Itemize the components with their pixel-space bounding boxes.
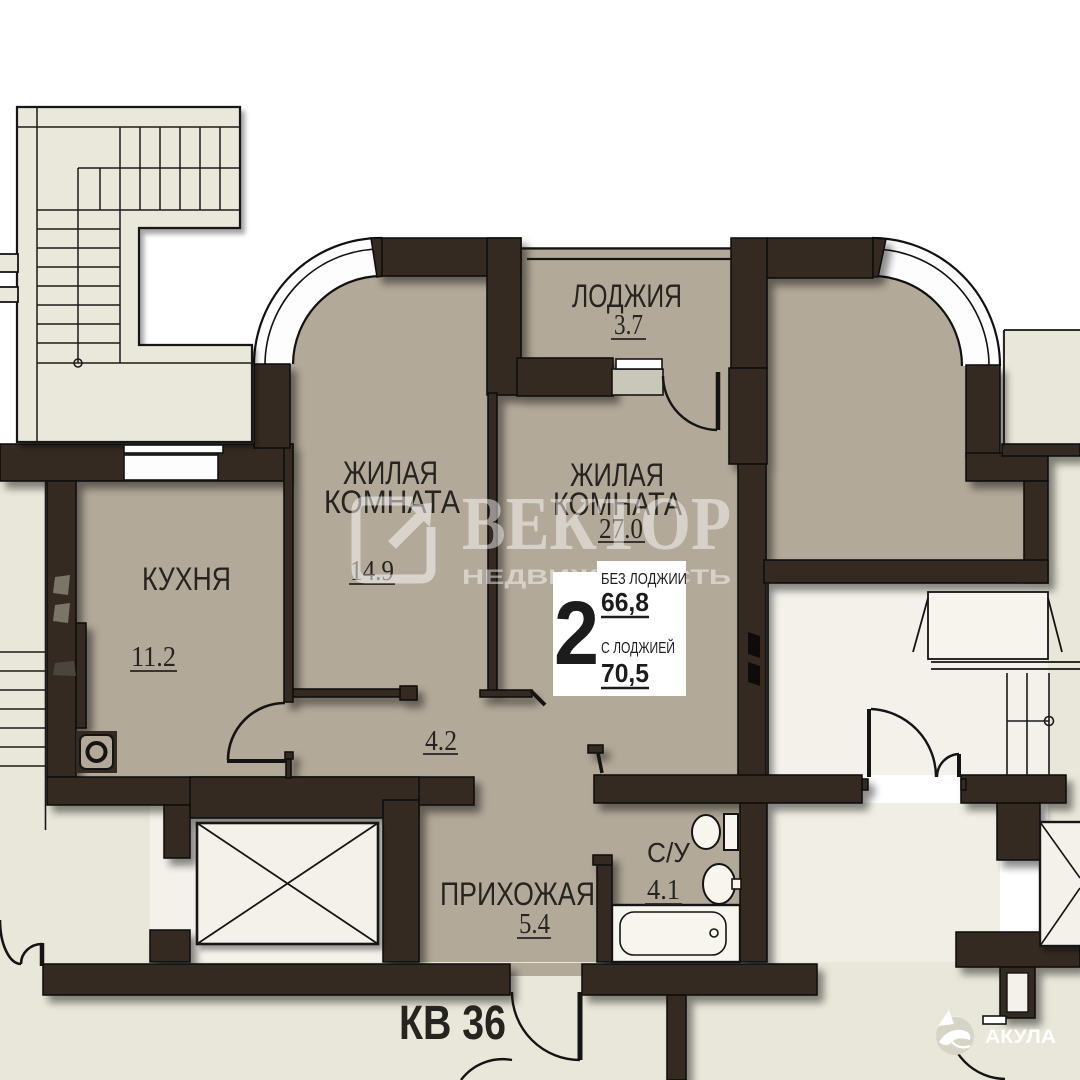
svg-text:3.7: 3.7	[614, 309, 643, 341]
svg-text:ВЕКТОР: ВЕКТОР	[462, 482, 731, 566]
svg-text:С ЛОДЖИЕЙ: С ЛОДЖИЕЙ	[601, 638, 675, 657]
svg-text:2: 2	[554, 584, 599, 684]
svg-text:70,5: 70,5	[601, 658, 649, 688]
svg-text:ПРИХОЖАЯ: ПРИХОЖАЯ	[440, 876, 595, 912]
svg-text:5.4: 5.4	[519, 908, 550, 940]
svg-text:АКУЛА: АКУЛА	[985, 1027, 1056, 1048]
svg-text:66,8: 66,8	[601, 587, 649, 617]
svg-text:КУХНЯ: КУХНЯ	[142, 561, 231, 597]
svg-text:11.2: 11.2	[131, 641, 176, 673]
svg-text:4.2: 4.2	[425, 725, 457, 757]
svg-text:4.1: 4.1	[647, 874, 680, 906]
svg-text:КВ 36: КВ 36	[399, 997, 506, 1050]
svg-text:БЕЗ ЛОДЖИИ: БЕЗ ЛОДЖИИ	[601, 571, 687, 588]
svg-text:С/У: С/У	[647, 837, 690, 868]
